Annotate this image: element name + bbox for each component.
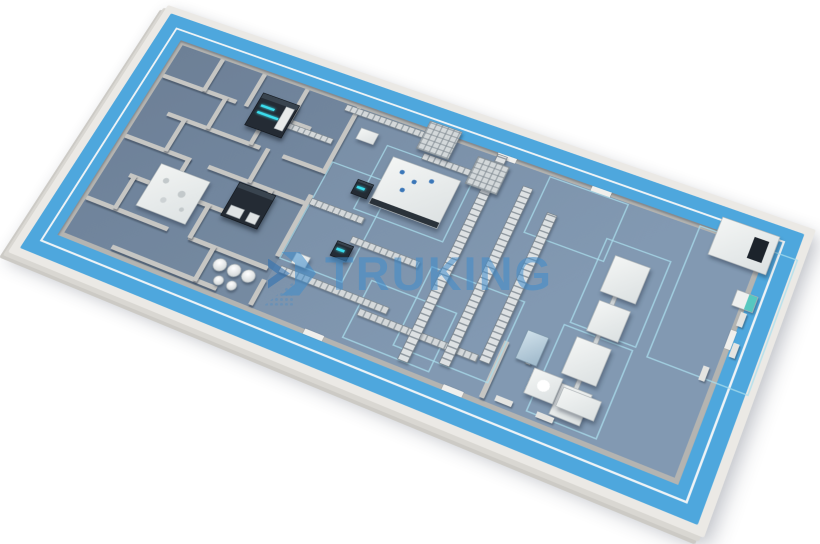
status-light [260, 104, 275, 111]
status-light [356, 186, 365, 191]
status-light [257, 111, 279, 121]
machine-knob [399, 169, 406, 175]
machine-panel [226, 205, 245, 220]
machine-knob [411, 179, 418, 185]
factory-building [8, 5, 816, 538]
machine-knob [428, 179, 435, 185]
factory-floorplan-render: TRUKING [0, 0, 820, 544]
machine-panel [245, 212, 261, 225]
machine-knob [399, 187, 406, 193]
machine-opening [747, 237, 770, 263]
status-light [336, 247, 345, 252]
